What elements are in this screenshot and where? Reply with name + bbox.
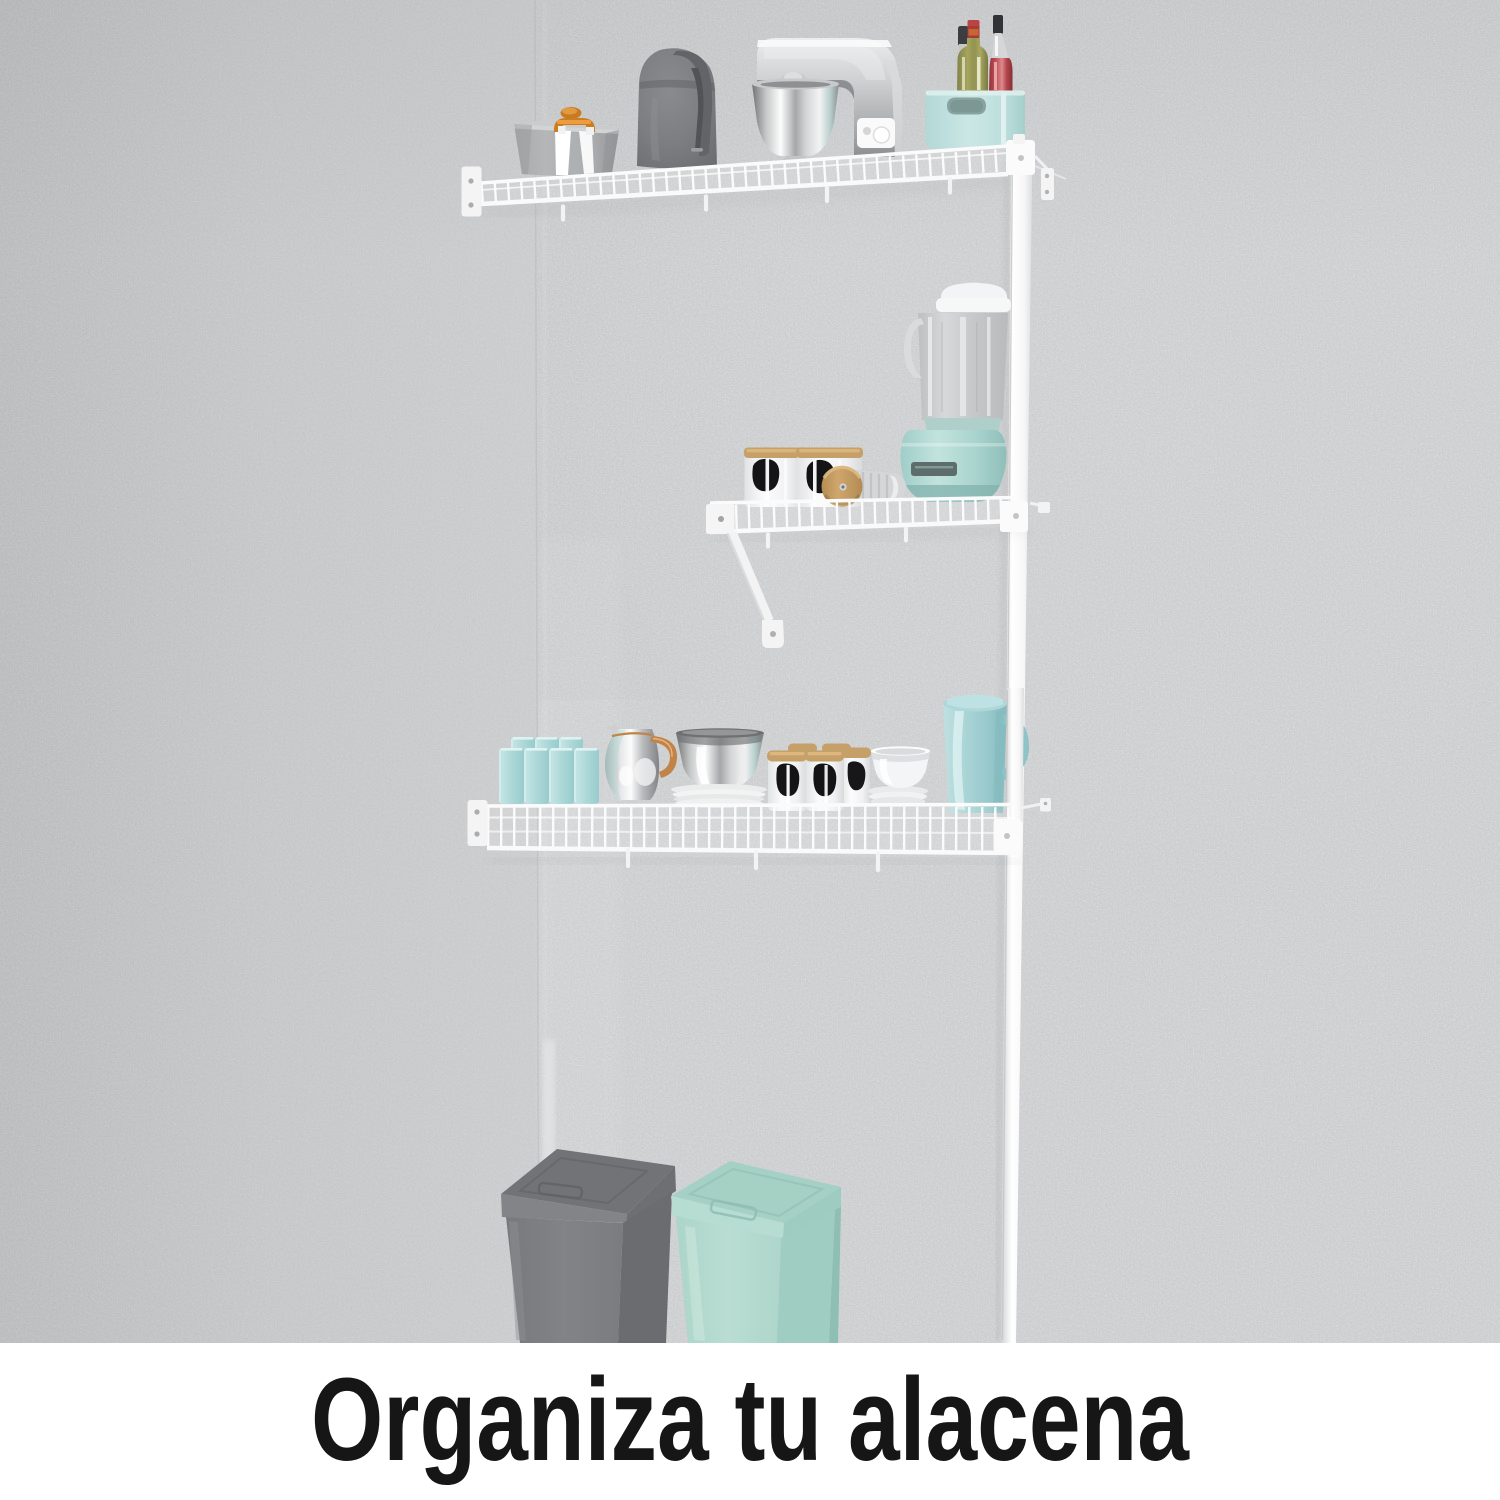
svg-text:Organiza tu alacena: Organiza tu alacena <box>311 1354 1190 1486</box>
